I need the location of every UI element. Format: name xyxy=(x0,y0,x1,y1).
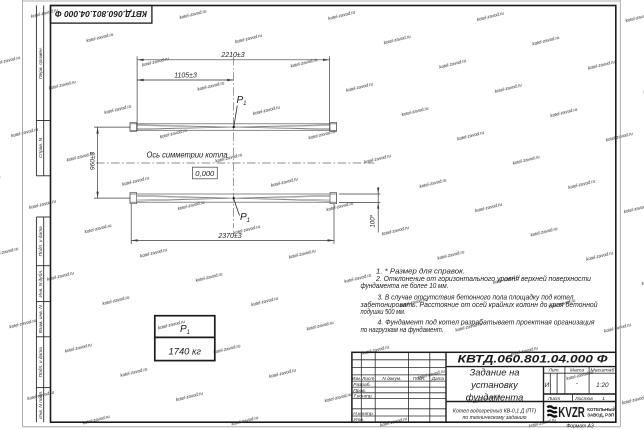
svg-text:фундамента не более 10 мм.: фундамента не более 10 мм. xyxy=(361,282,449,290)
svg-text:Подп.: Подп. xyxy=(413,376,425,381)
svg-text:Листов: Листов xyxy=(574,396,593,402)
svg-text:Масса: Масса xyxy=(570,368,585,374)
svg-text:Утв.: Утв. xyxy=(353,417,364,423)
svg-text:Перв. примен.: Перв. примен. xyxy=(38,47,44,79)
svg-text:Котел водогрейный КВ-0,1 Д (ПТ: Котел водогрейный КВ-0,1 Д (ПТ) xyxy=(453,407,536,414)
svg-text:100*: 100* xyxy=(370,214,377,227)
svg-text:установку: установку xyxy=(470,379,519,390)
svg-text:Подп. и дата: Подп. и дата xyxy=(38,347,44,377)
svg-text:Подп. и дата: Подп. и дата xyxy=(38,226,44,256)
svg-text:Инв. N дубл.: Инв. N дубл. xyxy=(38,270,44,298)
svg-text:Лист: Лист xyxy=(547,396,560,402)
svg-text:КОТЕЛЬНЫЙ: КОТЕЛЬНЫЙ xyxy=(587,407,616,412)
svg-text:Формат А3: Формат А3 xyxy=(566,424,594,430)
svg-text:по нагрузкам на фундамент.: по нагрузкам на фундамент. xyxy=(361,326,444,334)
svg-text:0,000: 0,000 xyxy=(195,169,215,178)
svg-text:КВТД.060.801.04.000 Ф: КВТД.060.801.04.000 Ф xyxy=(55,9,148,18)
svg-text:1105±3: 1105±3 xyxy=(174,72,197,79)
svg-text:Изм.: Изм. xyxy=(352,376,361,381)
svg-text:2210±3: 2210±3 xyxy=(220,52,244,59)
svg-text:1:20: 1:20 xyxy=(596,382,609,389)
svg-text:по техническому заданию: по техническому заданию xyxy=(462,415,526,421)
svg-text:Задание на: Задание на xyxy=(470,366,520,377)
svg-text:Лист: Лист xyxy=(361,376,374,381)
svg-text:4. Фундамент под котел разраба: 4. Фундамент под котел разрабатывает про… xyxy=(378,319,595,327)
svg-text:Справ. N: Справ. N xyxy=(38,137,44,158)
svg-text:N докум.: N докум. xyxy=(382,376,401,381)
svg-text:КВТД.060.801.04.000 Ф: КВТД.060.801.04.000 Ф xyxy=(458,354,609,366)
svg-text:Пров.: Пров. xyxy=(353,388,366,394)
svg-text:1: 1 xyxy=(602,396,605,402)
svg-text:960±3: 960±3 xyxy=(89,152,96,171)
svg-text:фундамента: фундамента xyxy=(466,392,524,403)
svg-text:Инв. N подл.: Инв. N подл. xyxy=(38,391,44,419)
svg-text:Т.контр.: Т.контр. xyxy=(353,394,373,400)
svg-text:1740 кг: 1740 кг xyxy=(169,346,202,357)
svg-text:Ось симметрии котла: Ось симметрии котла xyxy=(147,150,228,160)
svg-text:1. * Размер для справок.: 1. * Размер для справок. xyxy=(376,267,465,275)
svg-text:Разраб.: Разраб. xyxy=(353,382,371,388)
svg-text:3. В случае отсутствия бетонно: 3. В случае отсутствия бетонного пола пл… xyxy=(378,294,574,302)
svg-text:-: - xyxy=(576,380,578,387)
svg-text:2. Отклонение от горизонтально: 2. Отклонение от горизонтального уровня … xyxy=(375,275,591,283)
svg-text:Масштаб: Масштаб xyxy=(590,368,614,374)
svg-text:И: И xyxy=(545,382,550,389)
svg-text:забетонировать. Расстояние от: забетонировать. Расстояние от осей крайн… xyxy=(360,301,598,309)
svg-text:Н.контр.: Н.контр. xyxy=(353,411,374,417)
svg-text:2370±3: 2370±3 xyxy=(217,233,241,240)
svg-text:KVZR: KVZR xyxy=(558,405,585,421)
svg-text:подушки 500 мм.: подушки 500 мм. xyxy=(361,308,406,316)
svg-text:Дата: Дата xyxy=(431,376,445,381)
svg-text:Взам. инв. N: Взам. инв. N xyxy=(38,305,44,333)
svg-text:ЗАВОД, РЭП: ЗАВОД, РЭП xyxy=(587,412,614,417)
svg-text:Лит.: Лит. xyxy=(548,368,560,374)
